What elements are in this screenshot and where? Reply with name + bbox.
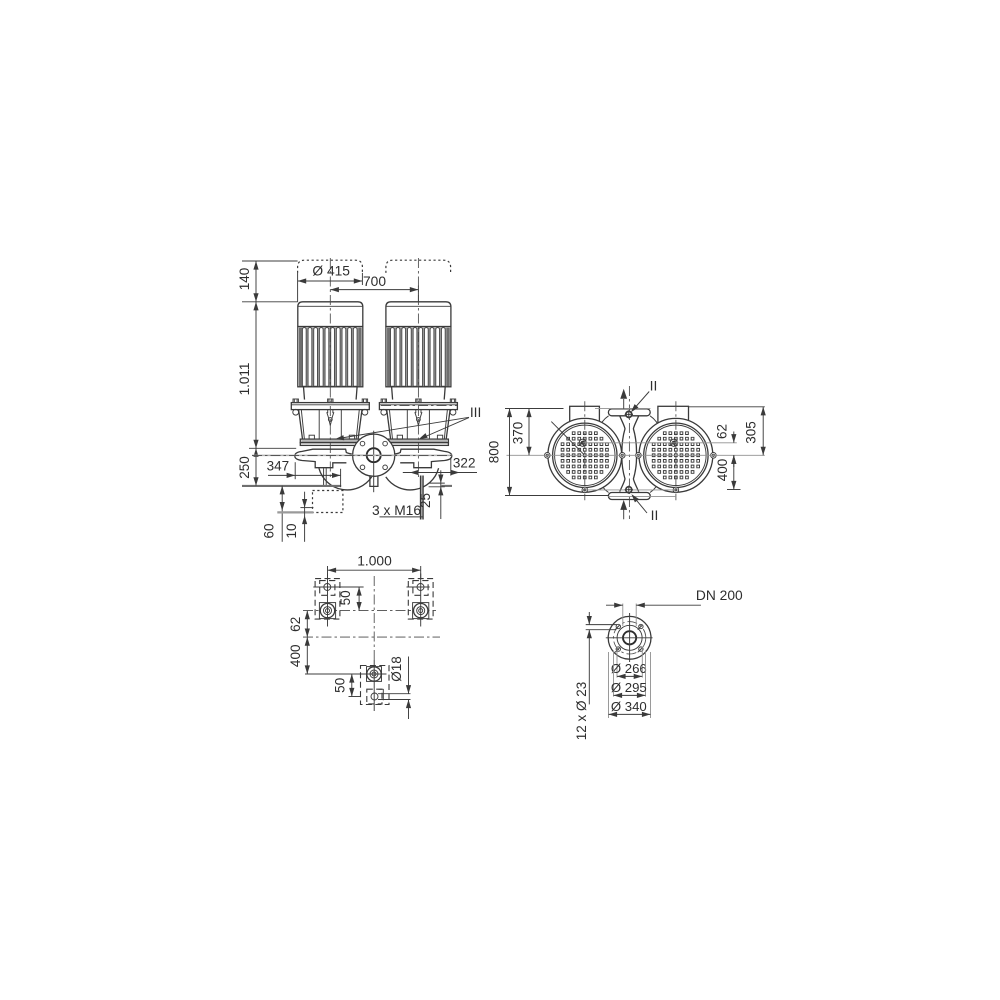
- svg-text:II: II: [650, 379, 658, 394]
- svg-text:322: 322: [453, 455, 476, 470]
- svg-text:62: 62: [715, 424, 730, 439]
- svg-text:DN 200: DN 200: [696, 588, 743, 603]
- svg-text:400: 400: [715, 459, 730, 482]
- svg-text:305: 305: [743, 421, 758, 444]
- svg-text:800: 800: [486, 441, 501, 464]
- svg-text:140: 140: [237, 268, 252, 291]
- svg-text:400: 400: [288, 645, 303, 668]
- svg-text:Ø 266: Ø 266: [611, 661, 647, 676]
- svg-text:Ø18: Ø18: [389, 656, 404, 682]
- svg-text:50: 50: [332, 678, 347, 693]
- svg-text:250: 250: [237, 456, 252, 479]
- svg-text:10: 10: [284, 523, 299, 538]
- svg-text:Ø 295: Ø 295: [611, 680, 647, 695]
- svg-text:370: 370: [510, 422, 525, 445]
- svg-text:III: III: [470, 405, 482, 420]
- svg-text:Ø 415: Ø 415: [312, 263, 350, 278]
- svg-text:Ø 340: Ø 340: [611, 699, 647, 714]
- svg-text:62: 62: [288, 617, 303, 632]
- svg-text:347: 347: [267, 459, 290, 474]
- svg-text:1.000: 1.000: [357, 553, 392, 568]
- svg-text:1.011: 1.011: [237, 363, 252, 396]
- svg-text:700: 700: [363, 274, 386, 289]
- svg-text:II: II: [651, 508, 659, 523]
- svg-text:60: 60: [262, 523, 277, 538]
- svg-text:12 x Ø 23: 12 x Ø 23: [574, 682, 589, 741]
- svg-text:3 x M16: 3 x M16: [372, 503, 421, 518]
- svg-text:50: 50: [338, 590, 353, 605]
